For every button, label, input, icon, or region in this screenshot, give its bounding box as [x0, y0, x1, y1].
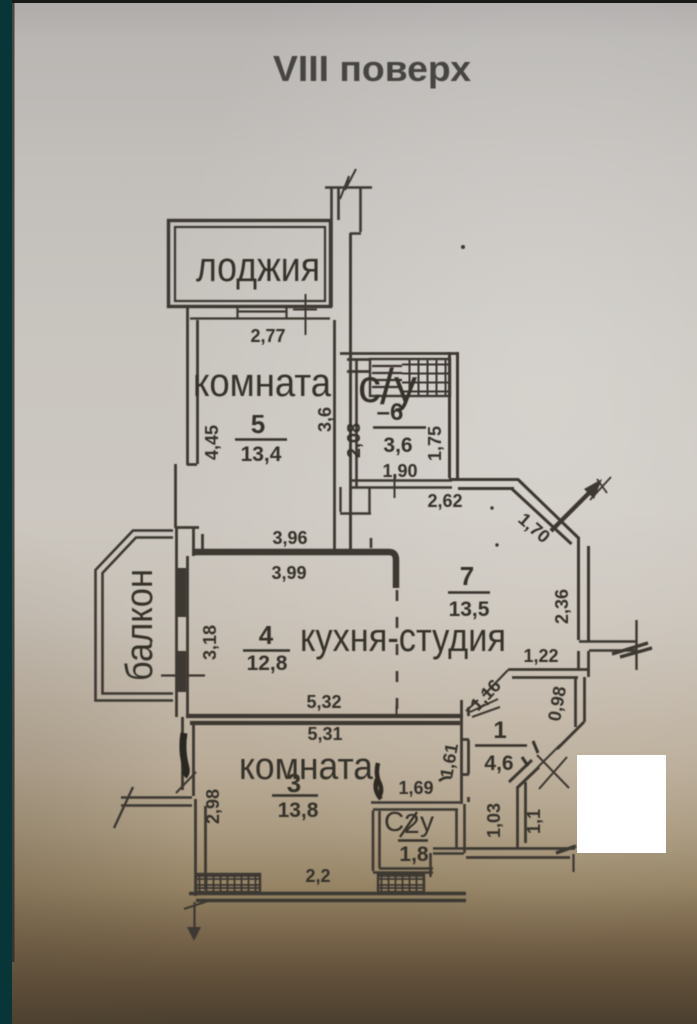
svg-text:кухня-студия: кухня-студия	[300, 616, 506, 660]
svg-text:12,8: 12,8	[247, 652, 288, 675]
svg-text:1,1: 1,1	[524, 809, 544, 834]
svg-text:1,22: 1,22	[523, 646, 558, 666]
svg-text:4,6: 4,6	[484, 752, 513, 775]
svg-text:1,90: 1,90	[382, 461, 417, 481]
svg-text:3,99: 3,99	[271, 563, 306, 583]
svg-text:3: 3	[287, 768, 301, 798]
svg-text:VIII поверх: VIII поверх	[273, 48, 471, 89]
svg-text:у: у	[420, 806, 434, 837]
svg-text:2,2: 2,2	[305, 866, 330, 886]
svg-text:5,31: 5,31	[307, 724, 342, 744]
svg-text:–6: –6	[377, 399, 404, 426]
svg-text:2,98: 2,98	[203, 789, 223, 824]
svg-text:2,62: 2,62	[427, 491, 462, 511]
svg-text:4: 4	[259, 620, 274, 650]
svg-text:1,75: 1,75	[425, 426, 445, 461]
svg-text:С: С	[384, 806, 404, 837]
svg-text:3,6: 3,6	[383, 434, 412, 457]
svg-text:лоджия: лоджия	[196, 243, 320, 290]
svg-text:1,8: 1,8	[399, 843, 429, 866]
svg-text:балкон: балкон	[119, 569, 161, 681]
svg-text:1,03: 1,03	[484, 803, 504, 838]
svg-text:5,32: 5,32	[306, 692, 341, 712]
svg-text:3,6: 3,6	[315, 407, 335, 432]
svg-text:5: 5	[251, 409, 265, 439]
svg-text:7: 7	[460, 561, 474, 591]
svg-text:3,18: 3,18	[200, 625, 220, 660]
svg-text:комната: комната	[193, 361, 332, 405]
svg-text:комната: комната	[239, 746, 374, 788]
svg-text:1: 1	[493, 717, 506, 744]
svg-text:13,4: 13,4	[241, 443, 282, 466]
svg-text:2,36: 2,36	[552, 589, 572, 624]
svg-text:1,69: 1,69	[398, 778, 433, 798]
svg-text:2,77: 2,77	[250, 326, 285, 346]
svg-text:2,08: 2,08	[344, 423, 364, 458]
svg-text:13,8: 13,8	[278, 799, 319, 822]
svg-text:3,96: 3,96	[272, 528, 307, 548]
svg-text:4,45: 4,45	[202, 425, 222, 460]
